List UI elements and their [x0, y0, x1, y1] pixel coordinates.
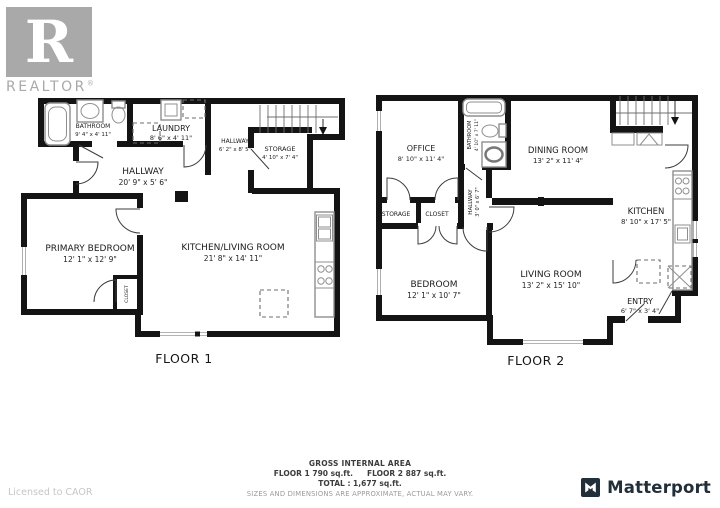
room-label-kitchen: KITCHEN [628, 207, 665, 217]
room-dims-bathroom: 4' 10" x 7' 11" [474, 119, 480, 151]
stairs-down-arrow [319, 127, 327, 135]
matterport-wordmark: Matterport [607, 478, 711, 497]
realtor-letter: R [25, 13, 73, 71]
stair-landing [612, 133, 634, 145]
room-label-kitchen-living: KITCHEN/LIVING ROOM [181, 243, 284, 253]
room-label-living: LIVING ROOM [520, 270, 581, 280]
room-label-hallway: HALLWAY [468, 189, 474, 215]
room-label-hallway-small: HALLWAY [221, 138, 249, 145]
room-label-bathroom: BATHROOM [467, 121, 473, 150]
room-label-hallway: HALLWAY [122, 167, 164, 177]
room-label-laundry: LAUNDRY [152, 124, 190, 133]
room-label-storage: STORAGE [265, 145, 296, 153]
floor1-title: FLOOR 1 [114, 351, 254, 366]
gross-area-title: GROSS INTERNAL AREA [0, 459, 720, 468]
floorplan-floor2: OFFICE 8' 10" x 11' 4" BATHROOM 4' 10" x… [370, 83, 715, 353]
license-text: Licensed to CAOR [8, 487, 92, 498]
room-label-primary-bedroom: PRIMARY BEDROOM [45, 244, 134, 254]
floor1-doors [76, 145, 269, 302]
toilet [482, 125, 498, 137]
stairs-down-arrow [671, 117, 679, 125]
room-label-entry: ENTRY [627, 297, 653, 306]
laundry-sink [161, 100, 181, 120]
floorplan-page: R REALTOR® [0, 0, 720, 508]
room-dims-primary-bedroom: 12' 1" x 12' 9" [63, 255, 117, 264]
kitchen-counter [315, 212, 334, 317]
floor2-room-labels: OFFICE 8' 10" x 11' 4" BATHROOM 4' 10" x… [382, 119, 671, 315]
room-dims-bathroom: 9' 4" x 4' 11" [75, 132, 111, 138]
closet-dashed [637, 260, 660, 283]
room-label-closet: CLOSET [425, 211, 449, 218]
floor2-title: FLOOR 2 [466, 353, 606, 368]
room-dims-kitchen: 8' 10" x 17' 5" [621, 218, 671, 226]
realtor-logo: R REALTOR® [6, 7, 94, 95]
room-dims-hallway: 3' 0" x 6' 7" [475, 187, 481, 216]
floorplan-floor1: BATHROOM 9' 4" x 4' 11" LAUNDRY 8' 6" x … [15, 85, 370, 347]
floor1-area: FLOOR 1 790 sq.ft. [274, 469, 353, 478]
room-dims-storage: 4' 10" x 7' 4" [262, 155, 298, 161]
room-label-storage: STORAGE [382, 211, 411, 218]
room-dims-living: 13' 2" x 15' 10" [522, 281, 580, 290]
room-dims-hallway: 20' 9" x 5' 6" [119, 178, 168, 187]
island-dashed [260, 290, 288, 317]
room-dims-laundry: 8' 6" x 4' 11" [150, 134, 192, 142]
chimney [175, 191, 188, 202]
room-label-bedroom: BEDROOM [411, 280, 458, 290]
matterport-logo: Matterport [580, 477, 711, 498]
room-dims-office: 8' 10" x 11' 4" [398, 155, 444, 163]
room-dims-dining: 13' 2" x 11' 4" [533, 157, 583, 165]
room-dims-kitchen-living: 21' 8" x 14' 11" [204, 254, 262, 263]
room-label-office: OFFICE [407, 144, 436, 153]
room-label-closet: CLOSET [124, 285, 130, 303]
floor2-stairs [612, 96, 692, 145]
room-dims-bedroom: 12' 1" x 10' 7" [407, 291, 461, 300]
room-label-dining: DINING ROOM [528, 146, 588, 156]
room-dims-hallway-small: 6' 2" x 8' 5" [219, 147, 251, 153]
registered-mark: ® [87, 79, 94, 87]
realtor-logo-icon: R [6, 7, 92, 77]
floor1-room-labels: BATHROOM 9' 4" x 4' 11" LAUNDRY 8' 6" x … [45, 123, 298, 303]
room-label-bathroom: BATHROOM [76, 123, 111, 130]
realtor-wordmark: REALTOR® [6, 79, 94, 95]
floor2-area: FLOOR 2 887 sq.ft. [367, 469, 446, 478]
room-dims-entry: 6' 7" x 3' 4" [621, 307, 659, 315]
matterport-icon [580, 477, 601, 498]
